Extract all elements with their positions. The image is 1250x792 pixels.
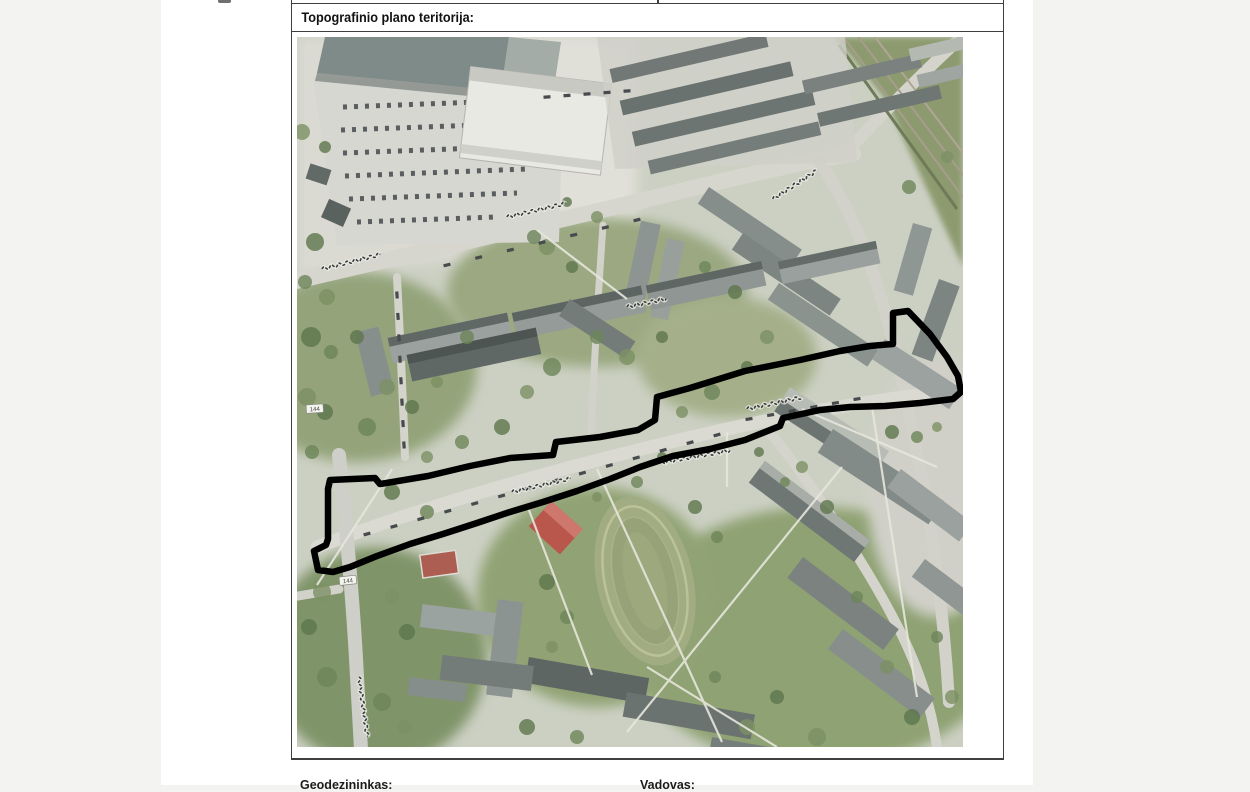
- form-table: Topografinio plano teritorija:: [291, 0, 1004, 760]
- clipped-logo-mark: [218, 0, 231, 3]
- svg-text:144: 144: [310, 407, 321, 414]
- document-page: Topografinio plano teritorija:: [161, 0, 1033, 785]
- road-number-badge: 144: [306, 404, 324, 414]
- footer-left-label: Geodezininkas:: [300, 778, 392, 792]
- red-sports-court: [420, 550, 459, 578]
- table-header-row: [292, 0, 1003, 4]
- aerial-map-canvas: 144144: [297, 37, 963, 747]
- road-number-badge: 144: [339, 575, 357, 585]
- viewer-background: { "document": { "section_title": "Topogr…: [0, 0, 1250, 785]
- section-title: Topografinio plano teritorija:: [292, 10, 474, 25]
- section-title-row: Topografinio plano teritorija:: [292, 4, 1003, 32]
- map-cell: 144144: [292, 32, 1003, 753]
- header-column-divider: [657, 0, 659, 3]
- svg-text:144: 144: [343, 578, 354, 585]
- footer-right-label: Vadovas:: [640, 778, 695, 792]
- aerial-map-image: 144144: [297, 37, 963, 747]
